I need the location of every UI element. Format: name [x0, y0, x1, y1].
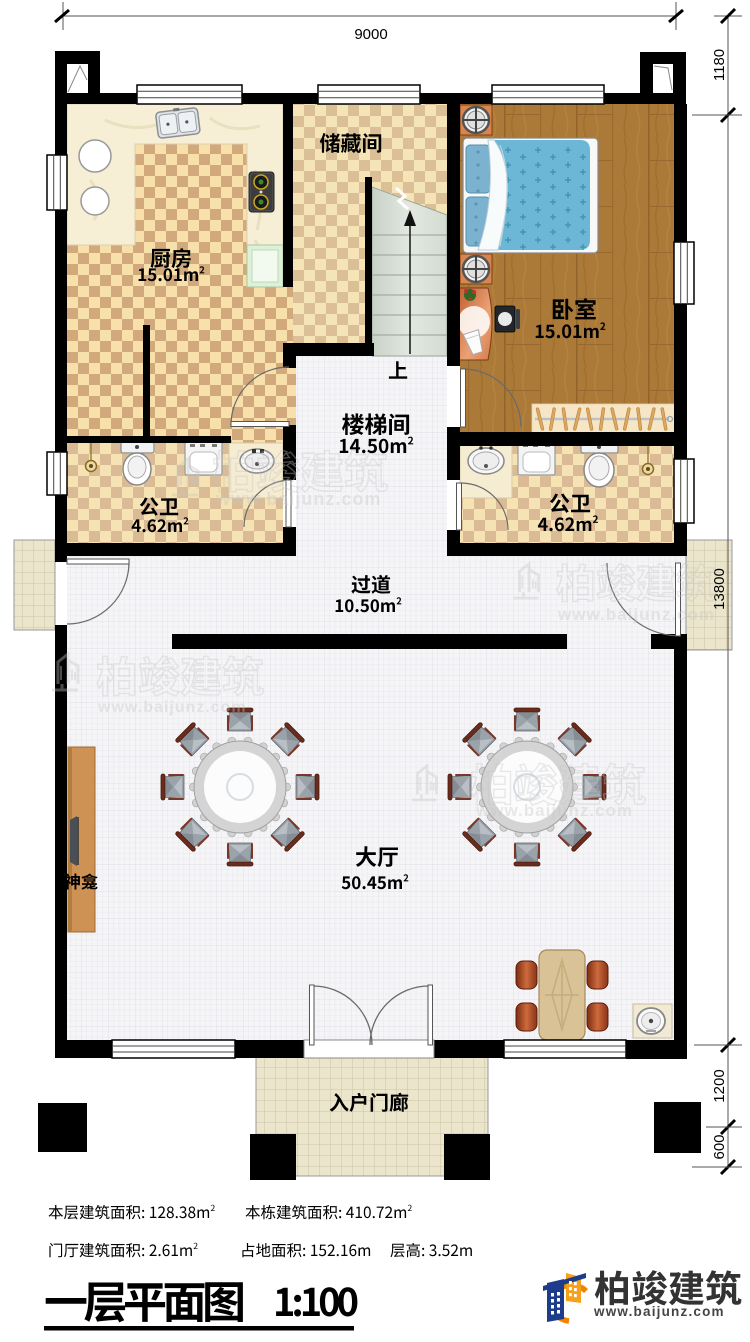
svg-text:600: 600	[711, 1134, 728, 1159]
svg-text:www.baijunz.com: www.baijunz.com	[557, 605, 715, 624]
svg-text:www.baijunz.com: www.baijunz.com	[215, 489, 381, 509]
svg-text:9000: 9000	[354, 26, 387, 43]
svg-text:www.baijunz.com: www.baijunz.com	[593, 1304, 725, 1319]
svg-text:www.baijunz.com: www.baijunz.com	[97, 699, 247, 716]
svg-text:1200: 1200	[711, 1069, 728, 1102]
svg-text:www.baijunz.com: www.baijunz.com	[475, 801, 633, 820]
svg-text:13800: 13800	[711, 568, 728, 610]
svg-text:1180: 1180	[711, 49, 728, 81]
